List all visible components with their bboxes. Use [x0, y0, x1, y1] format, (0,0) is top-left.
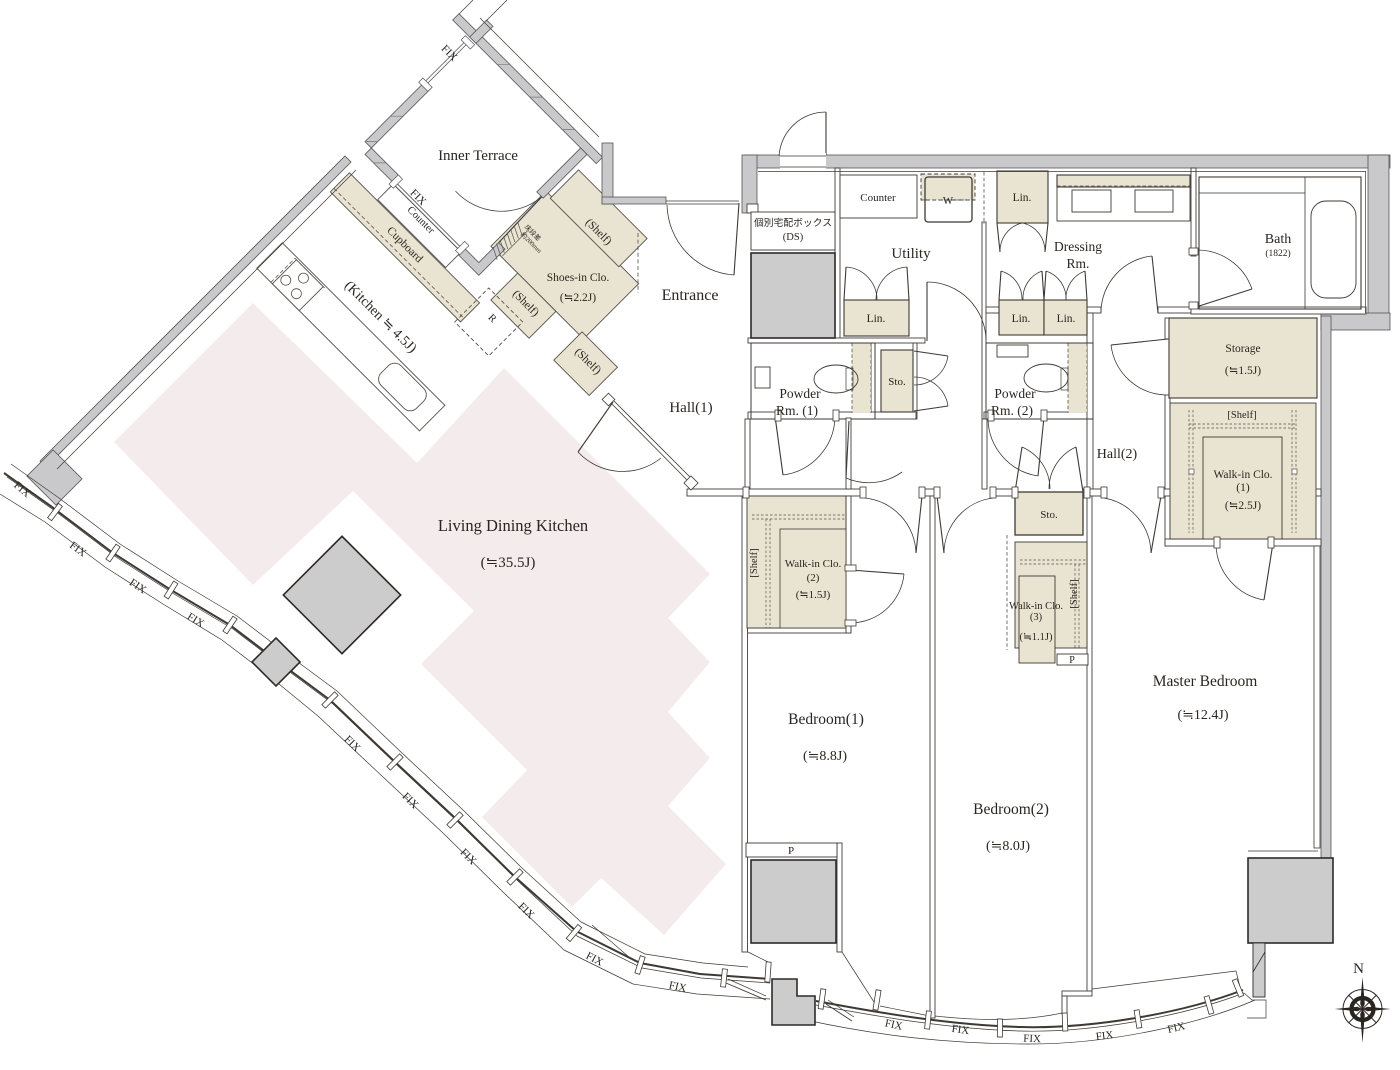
svg-text:Lin.: Lin. — [1013, 192, 1032, 204]
svg-text:FIX: FIX — [127, 577, 148, 597]
svg-text:(≒2.5J): (≒2.5J) — [1225, 500, 1261, 512]
svg-text:(≒12.4J): (≒12.4J) — [1177, 708, 1228, 723]
svg-text:Dressing: Dressing — [1054, 239, 1102, 254]
svg-text:Powder: Powder — [779, 386, 821, 401]
svg-text:Lin.: Lin. — [1057, 313, 1076, 325]
svg-text:FIX: FIX — [67, 540, 88, 560]
svg-text:P: P — [1069, 655, 1075, 666]
svg-text:Bath: Bath — [1265, 232, 1291, 247]
svg-text:(≒1.5J): (≒1.5J) — [796, 589, 831, 601]
svg-text:Bedroom(1): Bedroom(1) — [788, 711, 864, 728]
svg-text:Utility: Utility — [891, 246, 931, 262]
svg-text:FIX: FIX — [1095, 1029, 1114, 1043]
svg-text:[Shelf]: [Shelf] — [749, 548, 760, 577]
svg-text:FIX: FIX — [951, 1023, 970, 1037]
svg-text:Entrance: Entrance — [662, 287, 719, 304]
svg-text:FIX: FIX — [400, 790, 421, 811]
svg-text:Lin.: Lin. — [1012, 313, 1031, 325]
svg-text:N: N — [1353, 961, 1364, 977]
svg-text:FIX: FIX — [584, 950, 605, 969]
svg-text:Bedroom(2): Bedroom(2) — [973, 801, 1049, 818]
svg-text:Rm. (2): Rm. (2) — [991, 403, 1033, 418]
svg-text:FIX: FIX — [1166, 1020, 1186, 1036]
svg-text:(≒1.5J): (≒1.5J) — [1225, 365, 1261, 377]
svg-text:[Shelf]: [Shelf] — [1227, 410, 1256, 421]
svg-text:FIX: FIX — [185, 611, 206, 630]
svg-text:FIX: FIX — [458, 846, 479, 867]
svg-text:(≒8.8J): (≒8.8J) — [803, 749, 847, 764]
svg-text:Lin.: Lin. — [867, 313, 886, 325]
svg-text:(DS): (DS) — [783, 232, 804, 243]
svg-text:[Shelf]: [Shelf] — [1069, 579, 1080, 608]
svg-text:P: P — [788, 845, 794, 857]
svg-text:Rm.: Rm. — [1067, 256, 1090, 271]
svg-text:(3): (3) — [1030, 612, 1043, 623]
svg-text:(≒8.0J): (≒8.0J) — [986, 839, 1030, 854]
svg-text:Storage: Storage — [1225, 343, 1260, 355]
svg-text:Counter: Counter — [860, 192, 896, 204]
svg-text:個別宅配ボックス: 個別宅配ボックス — [754, 216, 832, 229]
svg-text:FIX: FIX — [342, 733, 363, 754]
svg-text:FIX: FIX — [439, 43, 460, 64]
svg-text:Walk-in Clo.: Walk-in Clo. — [1009, 601, 1063, 612]
svg-text:FIX: FIX — [1023, 1033, 1041, 1046]
svg-text:Hall(1): Hall(1) — [669, 400, 712, 416]
svg-text:Sto.: Sto. — [888, 376, 906, 388]
svg-text:Hall(2): Hall(2) — [1097, 447, 1138, 462]
svg-text:Walk-in Clo.: Walk-in Clo. — [1213, 469, 1272, 481]
svg-text:FIX: FIX — [516, 900, 537, 921]
svg-text:R: R — [486, 312, 499, 325]
svg-text:Rm. (1): Rm. (1) — [776, 403, 818, 418]
svg-text:(1): (1) — [1236, 482, 1250, 494]
svg-text:(≒2.2J): (≒2.2J) — [560, 292, 596, 304]
svg-text:Powder: Powder — [994, 386, 1036, 401]
svg-text:Walk-in Clo.: Walk-in Clo. — [785, 558, 842, 570]
svg-text:W: W — [943, 195, 954, 207]
svg-text:Living Dining Kitchen: Living Dining Kitchen — [438, 516, 588, 535]
svg-text:Master Bedroom: Master Bedroom — [1153, 673, 1258, 690]
svg-text:Shoes-in Clo.: Shoes-in Clo. — [547, 272, 610, 284]
svg-text:(2): (2) — [807, 572, 820, 584]
svg-text:(1822): (1822) — [1265, 248, 1290, 259]
svg-text:FIX: FIX — [884, 1017, 904, 1032]
svg-text:(≒1.1J): (≒1.1J) — [1019, 632, 1053, 643]
svg-text:FIX: FIX — [668, 979, 688, 994]
svg-text:Sto.: Sto. — [1040, 509, 1058, 521]
svg-text:(≒35.5J): (≒35.5J) — [481, 555, 536, 571]
svg-text:Inner Terrace: Inner Terrace — [438, 148, 518, 164]
